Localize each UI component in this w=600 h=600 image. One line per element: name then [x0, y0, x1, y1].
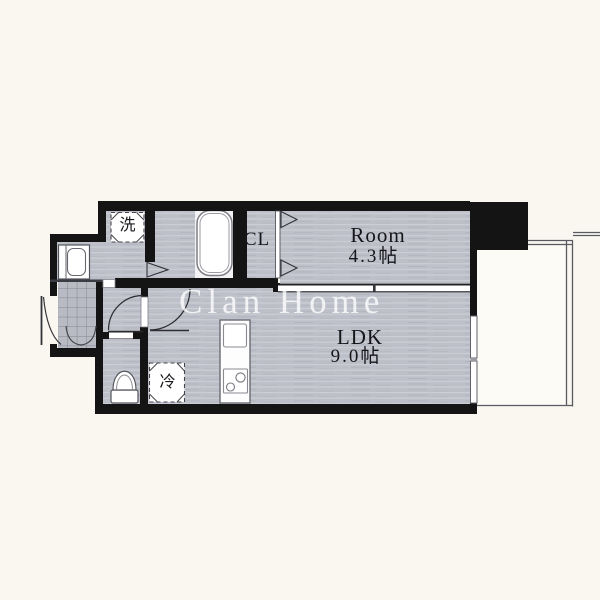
- ldk-window-mullion: [471, 358, 478, 361]
- ldk-size-label: 9.0帖: [294, 347, 418, 368]
- washroom-door-opening: [103, 280, 115, 288]
- wall-bath-west: [145, 211, 155, 262]
- wall-step: [50, 234, 106, 242]
- stove-burner-small: [227, 383, 235, 391]
- ldk-window-upper: [471, 316, 478, 358]
- washer-label: 洗: [111, 217, 144, 234]
- clan-home-watermark: Clan Home: [179, 282, 384, 322]
- wall-top: [98, 201, 470, 211]
- closet-text: CL: [244, 229, 270, 250]
- bedroom-size: 4.3帖: [280, 247, 468, 268]
- ldk-size: 9.0帖: [294, 347, 418, 368]
- closet-label: CL: [242, 230, 272, 251]
- toilet-door-opening: [109, 333, 133, 339]
- washbasin-bowl: [68, 249, 86, 276]
- wall-toilet-east: [140, 327, 148, 404]
- ldk-door-opening: [141, 297, 148, 327]
- fridge-text: 冷: [159, 374, 175, 391]
- toilet-tank: [111, 390, 138, 403]
- fridge-label: 冷: [150, 374, 185, 391]
- ldk-window-lower: [471, 361, 478, 403]
- washroom-genkan-line: [50, 280, 103, 283]
- bedroom-name: Room: [280, 224, 476, 247]
- entrance-genkan-floor: [58, 281, 96, 348]
- wall-genkan-east: [96, 280, 103, 349]
- balcony-floor: [477, 246, 567, 405]
- kitchen-sink: [224, 324, 247, 347]
- bedroom-size-label: 4.3帖: [280, 247, 468, 268]
- wall-corner-block: [470, 202, 528, 250]
- floorplan-page: { "watermark": { "text": "Clan Home" }, …: [0, 0, 600, 600]
- stove-burner-large: [236, 373, 245, 382]
- washer-text: 洗: [119, 217, 135, 234]
- bathtub-outer: [197, 211, 232, 276]
- wall-bottom: [95, 404, 477, 414]
- bedroom-label: Room: [280, 224, 476, 247]
- wall-left: [50, 234, 57, 296]
